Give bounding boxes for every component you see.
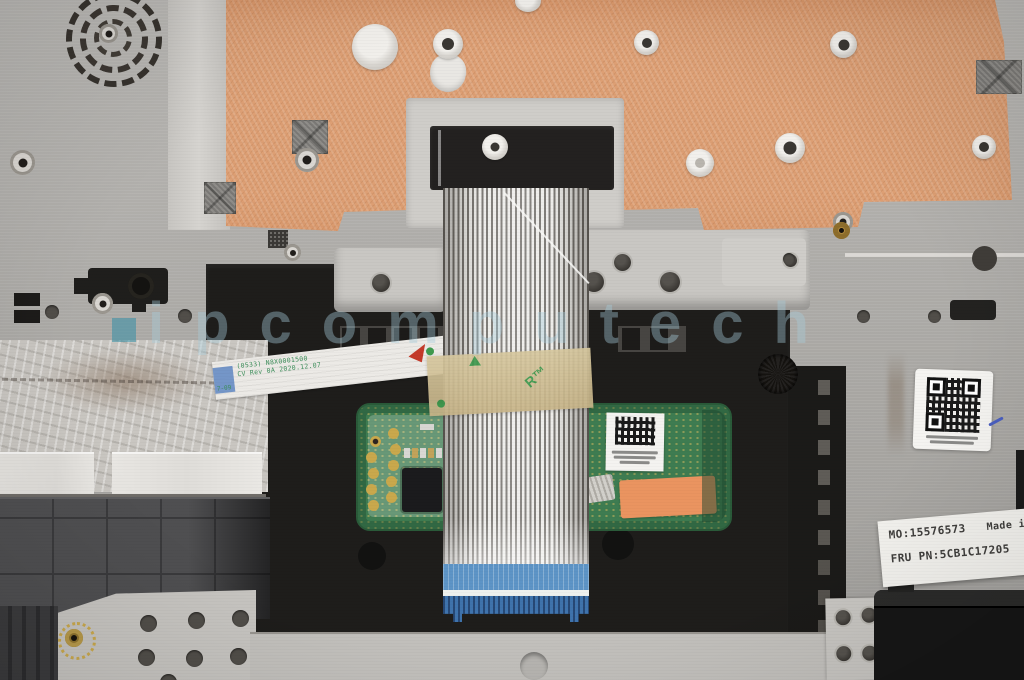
adhesive-square: [976, 60, 1022, 94]
ribbon-fade-band: [443, 518, 589, 566]
bracket-screw: [660, 272, 680, 292]
pcb-ic-chip: [402, 468, 442, 512]
black-clip-pair: [14, 293, 40, 306]
plate-screw: [836, 646, 851, 661]
clip-foot: [132, 300, 146, 312]
pcb-smd-row: [404, 448, 410, 458]
plastic-rivet: [352, 24, 398, 70]
gold-screw-boss: [65, 629, 83, 647]
coin-emboss: [758, 354, 798, 394]
tape-green-marking: R™: [521, 363, 550, 391]
vent-hole: [232, 610, 249, 627]
metal-step-line: [845, 253, 1024, 257]
plastic-rivet: [686, 149, 714, 177]
speaker-module: [874, 590, 1024, 680]
qr-sticker: [913, 369, 994, 452]
tan-tape: R™: [427, 348, 594, 417]
foil-bright-panel: [112, 452, 262, 494]
frame-recess-circle: [602, 528, 634, 560]
tape-green-arrow: [469, 356, 482, 367]
plastic-rivet: [972, 135, 996, 159]
vent-hole: [188, 612, 205, 629]
adhesive-square: [204, 182, 236, 214]
bottom-metal-band: [250, 632, 890, 680]
watermark-text: ipcomputech: [148, 290, 968, 357]
metal-eyelet: [92, 293, 113, 314]
pcb-serial-sticker: [605, 412, 664, 471]
fru-label-pn: FRU PN:5CB1C17205: [890, 542, 1010, 565]
module-lip: [874, 590, 1024, 608]
datamatrix-code: [615, 417, 655, 446]
screw-hole: [45, 305, 59, 319]
fru-label-mo: MO:15576573: [888, 522, 966, 542]
stiffener-upper: [443, 564, 589, 590]
watermark-logo-square: [112, 318, 136, 342]
plastic-rivet: [433, 29, 463, 59]
metal-eyelet: [99, 24, 118, 43]
screw-plate: [825, 598, 880, 680]
metal-stain: [888, 352, 904, 456]
connector-highlight: [438, 130, 441, 186]
pcb-edge-band: [702, 410, 726, 522]
plastic-rivet: [775, 133, 805, 163]
plastic-rivet: [830, 31, 857, 58]
palmrest-photo: (0533) N8X0001500 CV Rev 0A 2020.12.07 7…: [0, 0, 1024, 680]
plastic-rivet: [634, 30, 659, 55]
dark-corner-plastic: [0, 606, 58, 680]
pcb-smd: [420, 424, 434, 430]
clip-arm: [74, 278, 100, 294]
metal-eyelet: [10, 150, 35, 175]
metal-dark-circle: [972, 246, 997, 271]
qr-microtext: [923, 433, 981, 445]
ladder-rib-slots: [818, 380, 830, 395]
screw-hole: [783, 253, 795, 265]
metal-eyelet: [284, 244, 301, 261]
bracket-screw: [614, 254, 631, 271]
connector-eyelet: [482, 134, 508, 160]
gold-eyelet: [833, 222, 850, 239]
keyboard-connector-bar: [430, 126, 614, 190]
band-notch-hole: [520, 652, 548, 680]
fru-label-made-in: Made in Ch: [986, 516, 1024, 533]
fru-label: MO:15576573 Made in Ch FRU PN:5CB1C17205…: [877, 507, 1024, 588]
plate-screw: [835, 610, 850, 625]
vent-hole: [138, 649, 155, 666]
vent-hole: [230, 648, 247, 665]
bottom-left-plate: [56, 590, 256, 680]
etched-datamatrix: [268, 230, 288, 248]
metal-eyelet: [295, 148, 319, 172]
frame-recess-circle: [358, 542, 386, 570]
sticker-microtext: [610, 449, 660, 465]
vent-hole: [186, 650, 203, 667]
ribbon-blue-stiffener: [443, 564, 589, 622]
vent-hole: [160, 674, 177, 680]
vent-hole: [140, 615, 157, 632]
foil-bright-panel: [0, 452, 94, 494]
pcb-gold-pads: [370, 436, 381, 447]
tape-green-dot: [437, 399, 445, 407]
qr-code: [925, 377, 981, 433]
